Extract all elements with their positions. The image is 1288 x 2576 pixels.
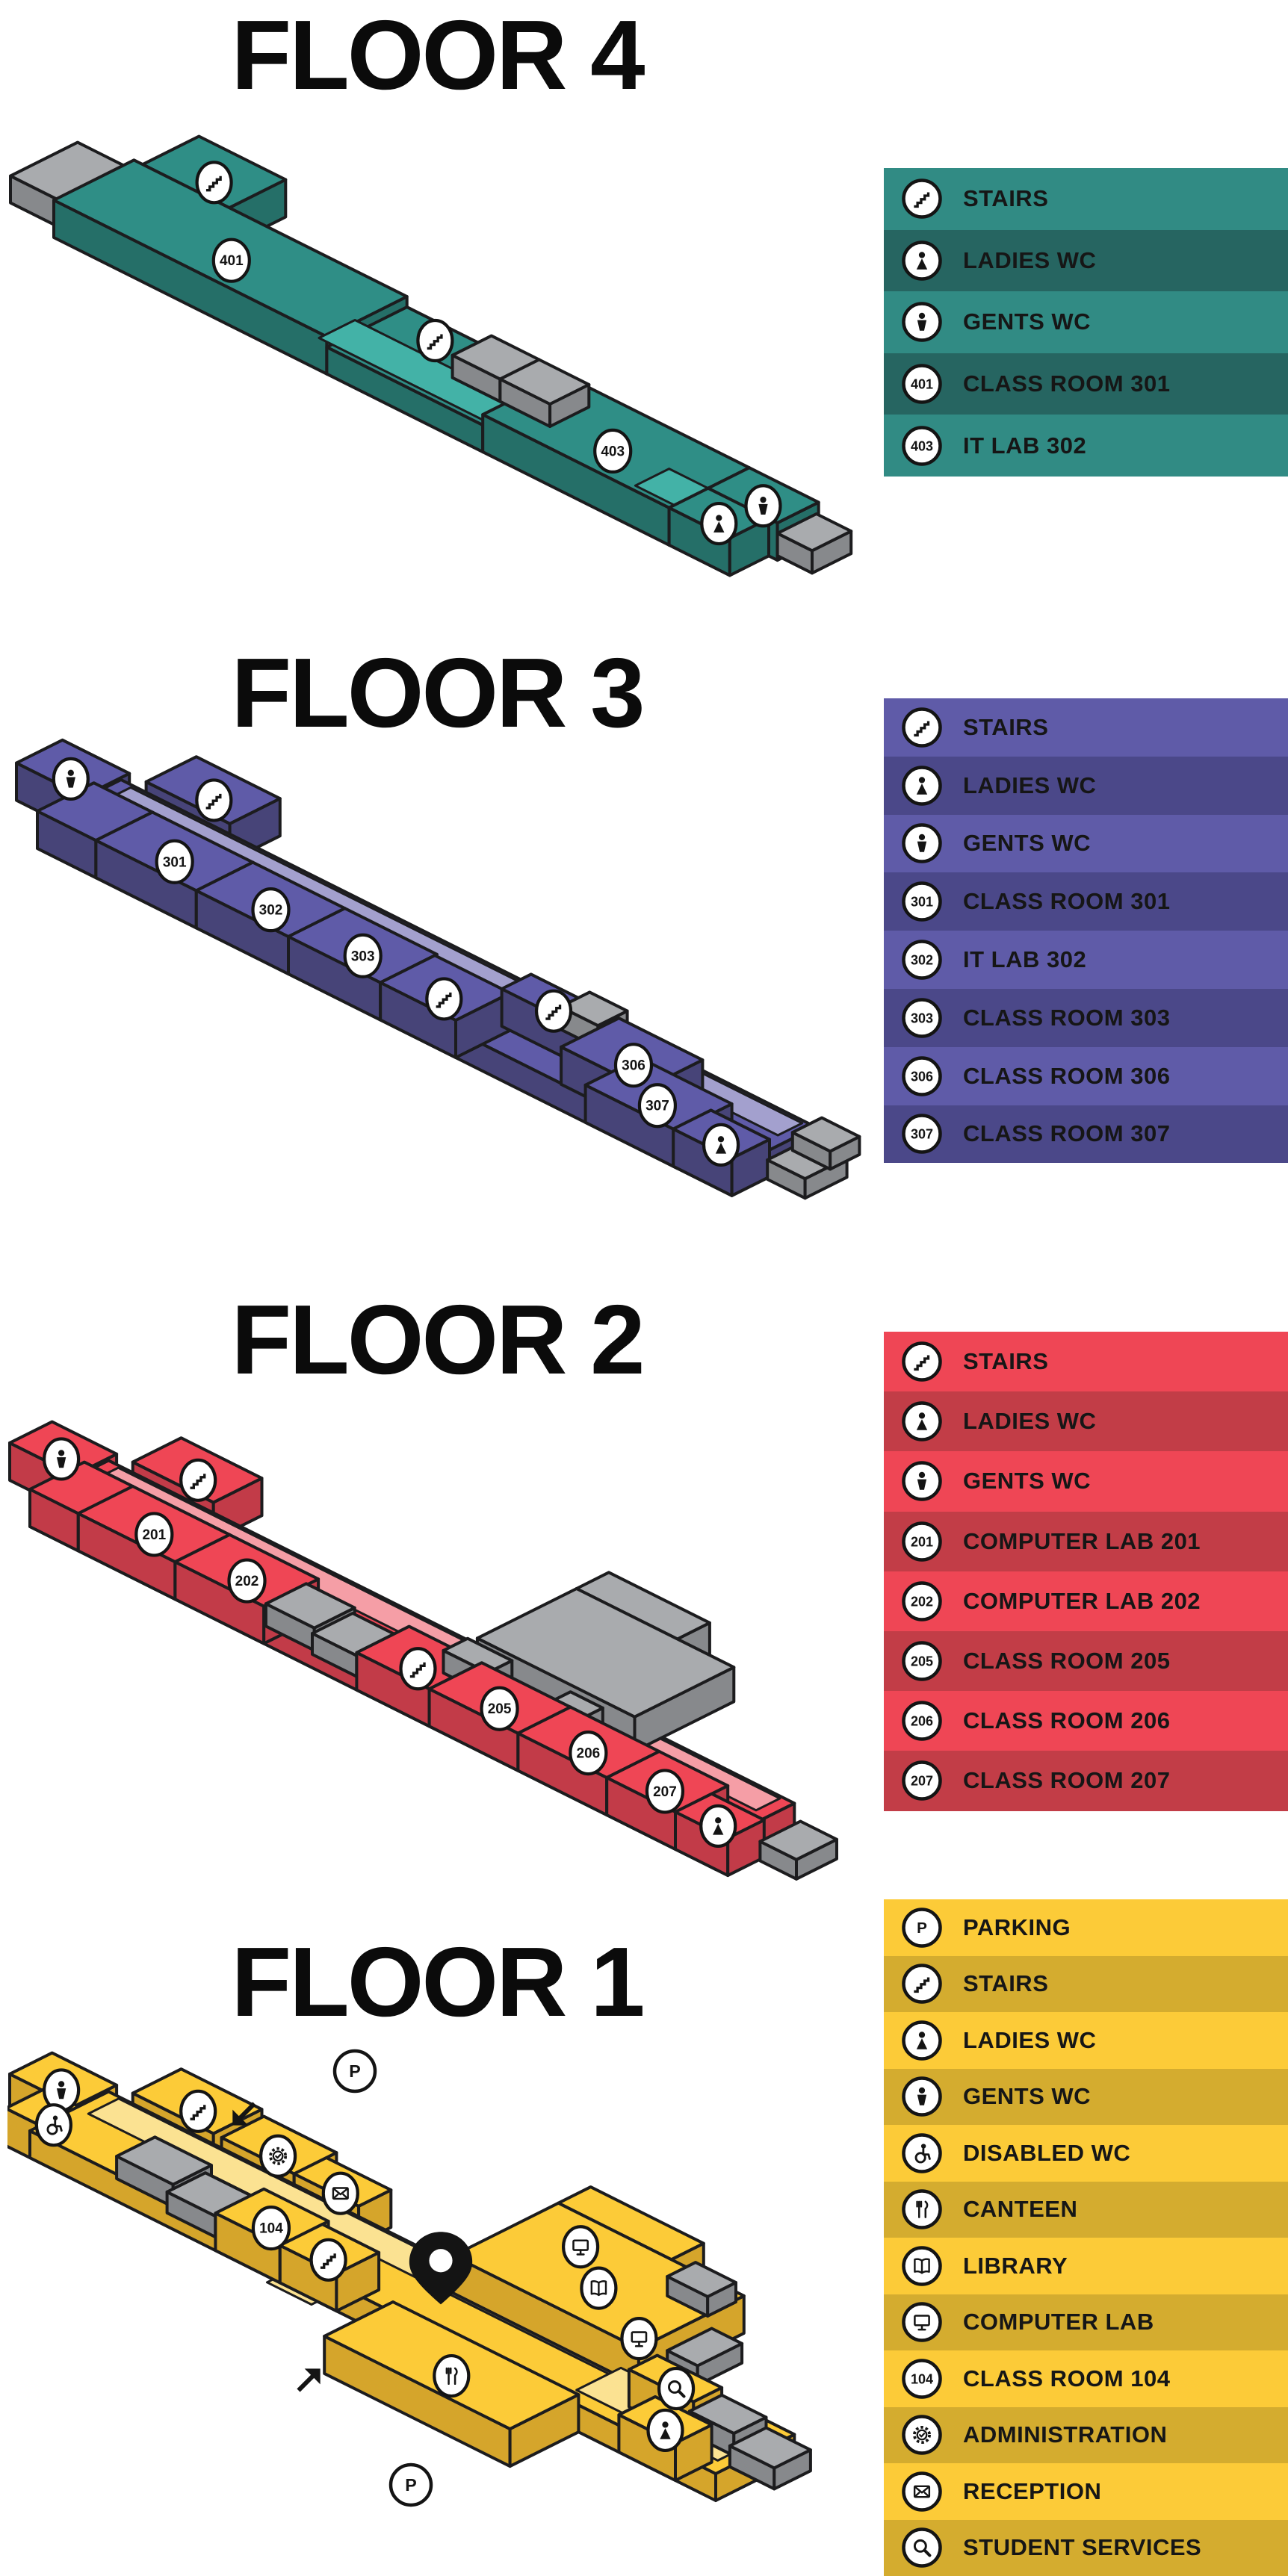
legend-label: STAIRS: [963, 1970, 1048, 1997]
legend-row-reception: RECEPTION: [884, 2463, 1288, 2520]
legend-row-stairs: STAIRS: [884, 1956, 1288, 2013]
floor-4-title: FLOOR 4: [7, 6, 867, 105]
room-badge-icon: 303: [900, 996, 944, 1040]
svg-text:207: 207: [911, 1774, 933, 1789]
legend-label: STAIRS: [963, 185, 1048, 212]
room-205-badge: 205: [482, 1688, 518, 1730]
legend-row-room-201: 201COMPUTER LAB 201: [884, 1512, 1288, 1571]
library-icon: [900, 2244, 944, 2288]
room-badge-icon: 401: [900, 362, 944, 406]
stairs-marker: [418, 320, 452, 361]
legend-row-ladies-wc: LADIES WC: [884, 757, 1288, 815]
svg-text:104: 104: [259, 2221, 283, 2237]
floor-3-title: FLOOR 3: [7, 644, 867, 742]
stairs-marker: [181, 2091, 215, 2132]
gents-icon: [900, 822, 944, 865]
legend-row-room-303: 303CLASS ROOM 303: [884, 989, 1288, 1047]
legend-label: RECEPTION: [963, 2478, 1101, 2505]
legend-row-ladies-wc: LADIES WC: [884, 2012, 1288, 2069]
svg-text:302: 302: [911, 953, 933, 968]
legend-row-gents-wc: GENTS WC: [884, 1451, 1288, 1511]
stairs-marker: [536, 991, 571, 1031]
room-303-badge: 303: [345, 935, 381, 977]
svg-text:104: 104: [911, 2371, 933, 2386]
legend-row-room-206: 206CLASS ROOM 206: [884, 1691, 1288, 1751]
disabled-marker: [37, 2105, 71, 2145]
svg-text:302: 302: [259, 903, 283, 919]
floor-1-title: FLOOR 1: [7, 1933, 867, 2032]
floor-1-legend: PARKINGSTAIRSLADIES WCGENTS WCDISABLED W…: [884, 1899, 1288, 2576]
floor-2-legend: STAIRSLADIES WCGENTS WC201COMPUTER LAB 2…: [884, 1332, 1288, 1811]
legend-row-stairs: STAIRS: [884, 168, 1288, 230]
legend-row-ladies-wc: LADIES WC: [884, 230, 1288, 292]
legend-label: LADIES WC: [963, 247, 1096, 274]
svg-text:301: 301: [911, 895, 933, 910]
ladies-icon: [900, 764, 944, 807]
legend-label: CLASS ROOM 307: [963, 1120, 1170, 1147]
legend-label: LIBRARY: [963, 2253, 1068, 2279]
room-badge-icon: 403: [900, 424, 944, 468]
svg-text:307: 307: [911, 1127, 933, 1142]
room-302-badge: 302: [253, 889, 288, 931]
room-201-badge: 201: [136, 1513, 172, 1555]
gents-marker: [44, 1438, 78, 1479]
ladies-icon: [900, 1400, 944, 1443]
room-207-badge: 207: [647, 1770, 683, 1812]
floor-map-poster: P FLOOR 4 401403 STAIRSLADIES WCGENTS WC…: [0, 0, 1288, 2576]
floor-3-legend: STAIRSLADIES WCGENTS WC301CLASS ROOM 301…: [884, 698, 1288, 1163]
legend-row-canteen: CANTEEN: [884, 2182, 1288, 2238]
room-104-badge: 104: [253, 2207, 289, 2249]
svg-text:201: 201: [911, 1534, 933, 1549]
legend-row-room-207: 207CLASS ROOM 207: [884, 1751, 1288, 1810]
floor-1-map: 104: [7, 2043, 867, 2575]
legend-label: IT LAB 302: [963, 946, 1086, 973]
ladies-marker: [702, 503, 736, 544]
floor-4-map: 401403: [7, 127, 867, 590]
room-206-badge: 206: [570, 1732, 606, 1774]
legend-label: GENTS WC: [963, 830, 1091, 857]
svg-text:303: 303: [351, 949, 375, 964]
room-307-badge: 307: [640, 1084, 675, 1126]
svg-text:401: 401: [220, 253, 244, 269]
room-badge-icon: 207: [900, 1759, 944, 1802]
legend-label: CLASS ROOM 301: [963, 370, 1170, 397]
svg-text:307: 307: [645, 1099, 669, 1114]
library-marker: [581, 2268, 616, 2309]
legend-row-stairs: STAIRS: [884, 1332, 1288, 1391]
ladies-marker: [701, 1806, 735, 1846]
svg-text:201: 201: [142, 1527, 166, 1543]
stairs-icon: [900, 706, 944, 749]
stairs-marker: [312, 2240, 346, 2280]
legend-row-computer-lab: COMPUTER LAB: [884, 2294, 1288, 2351]
legend-row-room-104: 104CLASS ROOM 104: [884, 2350, 1288, 2407]
legend-label: CLASS ROOM 306: [963, 1063, 1170, 1090]
legend-label: STAIRS: [963, 1348, 1048, 1375]
stairs-icon: [900, 177, 944, 220]
legend-row-room-401: 401CLASS ROOM 301: [884, 353, 1288, 415]
stairs-icon: [900, 1340, 944, 1383]
floor-4-legend: STAIRSLADIES WCGENTS WC401CLASS ROOM 301…: [884, 168, 1288, 477]
disabled-icon: [900, 2132, 944, 2175]
parking-marker: [335, 2051, 375, 2091]
legend-row-room-307: 307CLASS ROOM 307: [884, 1105, 1288, 1164]
room-badge-icon: 307: [900, 1112, 944, 1155]
legend-row-library: LIBRARY: [884, 2238, 1288, 2294]
svg-text:401: 401: [911, 377, 933, 392]
svg-text:206: 206: [911, 1714, 933, 1729]
legend-label: CLASS ROOM 301: [963, 888, 1170, 915]
stairs-marker: [427, 978, 461, 1019]
legend-label: LADIES WC: [963, 772, 1096, 799]
svg-text:205: 205: [488, 1701, 512, 1717]
legend-label: LADIES WC: [963, 1408, 1096, 1435]
svg-text:306: 306: [622, 1058, 645, 1074]
legend-label: GENTS WC: [963, 2083, 1091, 2110]
legend-row-room-205: 205CLASS ROOM 205: [884, 1631, 1288, 1691]
legend-label: CLASS ROOM 205: [963, 1648, 1170, 1675]
room-badge-icon: 301: [900, 880, 944, 923]
legend-label: COMPUTER LAB: [963, 2309, 1154, 2336]
legend-row-room-301: 301CLASS ROOM 301: [884, 872, 1288, 931]
ladies-marker: [704, 1125, 738, 1165]
floor-2-map: 201202205206207: [7, 1388, 867, 1911]
search-marker: [659, 2368, 693, 2409]
svg-text:303: 303: [911, 1011, 933, 1025]
gents-icon: [900, 1459, 944, 1503]
stairs-marker: [400, 1648, 435, 1689]
svg-text:206: 206: [577, 1746, 601, 1762]
legend-label: LADIES WC: [963, 2027, 1096, 2054]
gents-marker: [54, 759, 88, 799]
legend-label: STAIRS: [963, 714, 1048, 741]
svg-text:306: 306: [911, 1069, 933, 1084]
parking-marker: [391, 2465, 431, 2505]
computer-marker: [622, 2318, 656, 2359]
legend-label: STUDENT SERVICES: [963, 2534, 1201, 2561]
legend-label: CLASS ROOM 207: [963, 1767, 1170, 1794]
room-202-badge: 202: [229, 1560, 265, 1602]
ladies-icon: [900, 2019, 944, 2062]
computer-marker: [563, 2226, 598, 2267]
canteen-marker: [434, 2356, 468, 2396]
gents-marker: [746, 485, 780, 526]
legend-row-administration: ADMINISTRATION: [884, 2407, 1288, 2464]
legend-row-gents-wc: GENTS WC: [884, 815, 1288, 873]
map-blocks: [7, 2053, 811, 2501]
administration-icon: [900, 2413, 944, 2456]
search-icon: [900, 2526, 944, 2569]
legend-row-student-services: STUDENT SERVICES: [884, 2520, 1288, 2576]
legend-label: CANTEEN: [963, 2196, 1077, 2223]
legend-row-stairs: STAIRS: [884, 698, 1288, 757]
room-badge-icon: 306: [900, 1055, 944, 1098]
floor-2-title: FLOOR 2: [7, 1291, 867, 1389]
gents-icon: [900, 2075, 944, 2118]
legend-row-ladies-wc: LADIES WC: [884, 1391, 1288, 1451]
legend-row-room-403: 403IT LAB 302: [884, 415, 1288, 477]
legend-label: PARKING: [963, 1914, 1071, 1941]
svg-text:207: 207: [653, 1784, 677, 1800]
administration-marker: [261, 2136, 295, 2176]
room-badge-icon: 302: [900, 938, 944, 981]
arrow-marker: [297, 2368, 320, 2392]
legend-label: ADMINISTRATION: [963, 2421, 1167, 2448]
legend-row-room-202: 202COMPUTER LAB 202: [884, 1571, 1288, 1631]
stairs-marker: [196, 780, 231, 820]
legend-row-parking: PARKING: [884, 1899, 1288, 1956]
room-403-badge: 403: [595, 430, 631, 472]
room-301-badge: 301: [157, 841, 193, 883]
legend-label: DISABLED WC: [963, 2140, 1130, 2167]
legend-row-gents-wc: GENTS WC: [884, 2069, 1288, 2126]
legend-row-disabled-wc: DISABLED WC: [884, 2125, 1288, 2182]
legend-label: CLASS ROOM 303: [963, 1005, 1170, 1031]
room-badge-icon: 201: [900, 1520, 944, 1563]
computer-icon: [900, 2300, 944, 2344]
svg-text:202: 202: [235, 1574, 259, 1589]
legend-label: COMPUTER LAB 201: [963, 1528, 1201, 1555]
legend-label: CLASS ROOM 206: [963, 1707, 1170, 1734]
legend-row-room-302: 302IT LAB 302: [884, 931, 1288, 989]
legend-label: CLASS ROOM 104: [963, 2365, 1170, 2392]
ladies-marker: [648, 2410, 683, 2451]
svg-text:403: 403: [601, 444, 625, 459]
room-badge-icon: 104: [900, 2357, 944, 2400]
stairs-marker: [197, 162, 232, 202]
parking-icon: [900, 1906, 944, 1949]
ladies-icon: [900, 239, 944, 282]
legend-row-gents-wc: GENTS WC: [884, 291, 1288, 353]
svg-text:403: 403: [911, 438, 933, 453]
legend-row-room-306: 306CLASS ROOM 306: [884, 1047, 1288, 1105]
room-401-badge: 401: [214, 240, 250, 282]
reception-icon: [900, 2470, 944, 2513]
svg-text:202: 202: [911, 1594, 933, 1609]
floor-3-map: 301302303306307: [7, 736, 867, 1214]
room-badge-icon: 205: [900, 1639, 944, 1683]
canteen-icon: [900, 2188, 944, 2231]
room-badge-icon: 202: [900, 1580, 944, 1623]
legend-label: GENTS WC: [963, 1468, 1091, 1495]
reception-marker: [323, 2173, 358, 2214]
gents-icon: [900, 300, 944, 344]
legend-label: GENTS WC: [963, 308, 1091, 335]
room-306-badge: 306: [616, 1044, 651, 1086]
svg-text:301: 301: [163, 854, 187, 870]
svg-text:205: 205: [911, 1654, 933, 1669]
legend-label: COMPUTER LAB 202: [963, 1588, 1201, 1615]
room-badge-icon: 206: [900, 1699, 944, 1742]
stairs-icon: [900, 1962, 944, 2005]
legend-label: IT LAB 302: [963, 432, 1086, 459]
stairs-marker: [181, 1460, 215, 1500]
